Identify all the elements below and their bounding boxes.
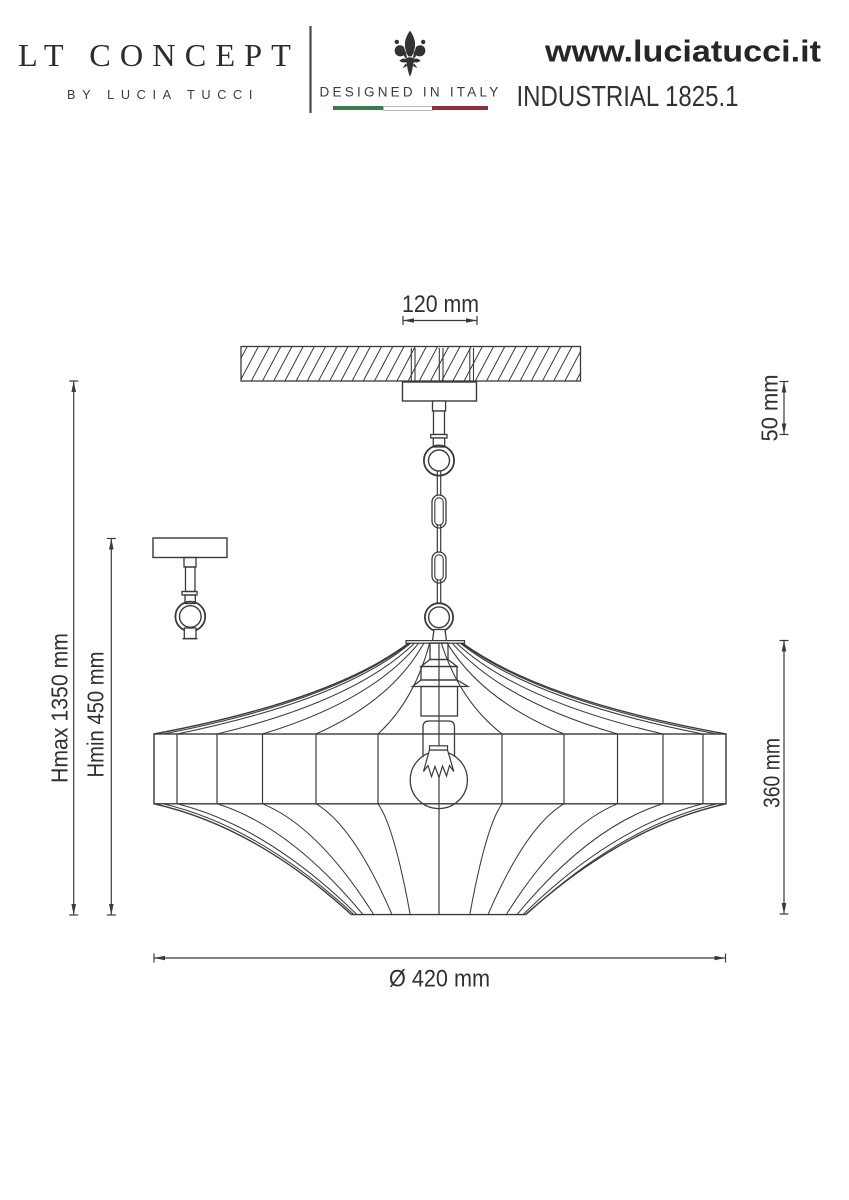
svg-text:DESIGNED IN ITALY: DESIGNED IN ITALY xyxy=(320,85,502,100)
svg-text:Hmin 450 mm: Hmin 450 mm xyxy=(83,652,109,778)
svg-text:BY LUCIA TUCCI: BY LUCIA TUCCI xyxy=(67,88,259,102)
svg-text:www.luciatucci.it: www.luciatucci.it xyxy=(544,34,821,69)
svg-text:INDUSTRIAL 1825.1: INDUSTRIAL 1825.1 xyxy=(517,81,739,113)
svg-text:360 mm: 360 mm xyxy=(759,738,785,808)
svg-text:Hmax 1350 mm: Hmax 1350 mm xyxy=(47,633,73,783)
svg-text:Ø 420 mm: Ø 420 mm xyxy=(389,966,490,993)
svg-text:LT CONCEPT: LT CONCEPT xyxy=(18,37,300,73)
svg-text:120 mm: 120 mm xyxy=(402,291,479,318)
svg-text:50 mm: 50 mm xyxy=(757,375,783,442)
